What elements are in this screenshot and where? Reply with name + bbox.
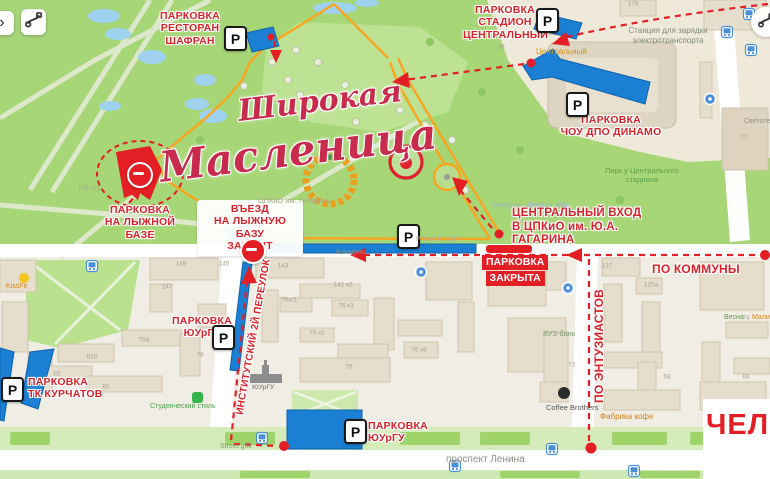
label-fabrika-kofe: Фабрика кофе <box>600 412 653 422</box>
label-parking-shafran: ПАРКОВКА РЕСТОРАН ШАФРАН <box>145 10 235 47</box>
label-planet-english: Planet English <box>416 236 461 244</box>
roundabout-statue <box>444 174 450 180</box>
label-park-near-stadium: Парк у Центрального стадиона <box>600 166 684 184</box>
label-parking-susu-bottom: ПАРКОВКА ЮУрГУ <box>368 420 432 445</box>
label-parking-stadium: ПАРКОВКА СТАДИОН ЦЕНТРАЛЬНЫЙ <box>463 4 547 41</box>
label-coffee-brothers: Coffee Brothers <box>546 403 598 412</box>
building-number: 72 <box>568 362 575 369</box>
label-lenina-avenue: проспект Ленина <box>446 454 525 466</box>
label-parking-closed: ПАРКОВКА ЗАКРЫТА <box>482 255 548 286</box>
parking-closed-line2: ЗАКРЫТА <box>486 271 545 286</box>
label-po-kommuny: ПО КОММУНЫ <box>652 262 740 276</box>
building-number: 68 <box>663 374 670 381</box>
building-number: 145 <box>219 261 230 268</box>
watermark-text: ЧЕЛ <box>706 409 769 442</box>
label-parking-dinamo: ПАРКОВКА ЧОУ ДПО ДИНАМО <box>556 114 666 139</box>
label-po-entuziastov: ПО ЭНТУЗИАСТОВ <box>592 289 606 403</box>
route-button[interactable] <box>21 9 46 35</box>
parking-icon-shafran: P <box>224 26 247 51</box>
shop-icon[interactable] <box>192 392 203 403</box>
label-stadium: Центральный <box>536 47 587 57</box>
label-studencheskiy: Студенческий стиль <box>150 403 216 411</box>
label-kissfit: KissFit <box>6 283 27 291</box>
label-charging-station: Станция для зарядки электротранспорта <box>618 26 718 45</box>
building-number: 36 <box>497 44 504 51</box>
label-susu: ЮУрГУ <box>252 384 274 392</box>
label-street-grill: Street grill <box>220 443 252 451</box>
parking-icon-kurchatov: P <box>1 377 24 402</box>
label-parking-ski: ПАРКОВКА НА ЛЫЖНОЙ БАЗЕ <box>92 204 188 241</box>
parking-icon-dinamo: P <box>566 92 589 117</box>
label-zvezdnaya: Звездная (Детская ж/д) <box>492 202 568 210</box>
building-number: 179 <box>628 1 639 8</box>
building-number: 74 <box>742 315 749 322</box>
building-number: 143 <box>278 263 289 270</box>
parking-closed-line1: ПАРКОВКА <box>482 255 548 270</box>
coffee-brothers-icon[interactable] <box>558 387 570 399</box>
route-icon <box>25 11 42 33</box>
label-malina: Малина <box>752 314 770 322</box>
chevron-right-icon: › <box>0 14 5 32</box>
building-number: 149 <box>176 261 187 268</box>
building-number: 80 <box>102 384 109 391</box>
building-number: 76 <box>345 364 352 371</box>
building-number: 76 к3 <box>338 303 354 310</box>
label-vuz-bank: ВУЗ-банк <box>543 329 575 338</box>
building-number: 76а/1 <box>281 297 297 304</box>
collapse-panel-button[interactable]: › <box>0 11 14 35</box>
no-entry-icon-road <box>240 238 266 264</box>
building-number: 82б <box>87 354 98 361</box>
parking-icon-susu-bottom: P <box>344 419 367 444</box>
watermark-block: ЧЕЛ <box>703 399 770 479</box>
parking-icon-susu-mid: P <box>212 325 235 350</box>
building-number: 76 к2 <box>309 330 325 337</box>
building-number: 66 <box>742 374 749 381</box>
building-number: 22 <box>740 134 747 141</box>
label-kommuny-street: Коммуны <box>336 249 366 257</box>
kissfit-icon[interactable] <box>19 273 29 283</box>
building-number: 141 к2 <box>333 282 352 289</box>
building-number: 76 к8 <box>411 347 427 354</box>
building-number: 137 <box>602 263 613 270</box>
building-number: 147 <box>162 284 173 291</box>
route-icon <box>758 12 770 33</box>
label-vesna: Весна <box>724 314 744 322</box>
label-central-entrance: ЦЕНТРАЛЬНЫЙ ВХОД В ЦПКиО им. Ю.А. ГАГАРИ… <box>512 207 662 248</box>
map-canvas[interactable]: ПАРКОВКА РЕСТОРАН ШАФРАН ПАРКОВКА СТАДИО… <box>0 0 770 479</box>
building-number: 78 <box>196 352 203 359</box>
label-cpkio: ЦПКиО им. Гагарина <box>258 196 330 205</box>
building-number: 82 <box>53 371 60 378</box>
parking-icon-stadium: P <box>536 8 559 33</box>
building-number: 135а <box>644 282 658 289</box>
stadium-marker <box>527 59 536 68</box>
label-svetotehnika: Светотехника <box>744 118 770 126</box>
building-number: 78а <box>139 337 150 344</box>
